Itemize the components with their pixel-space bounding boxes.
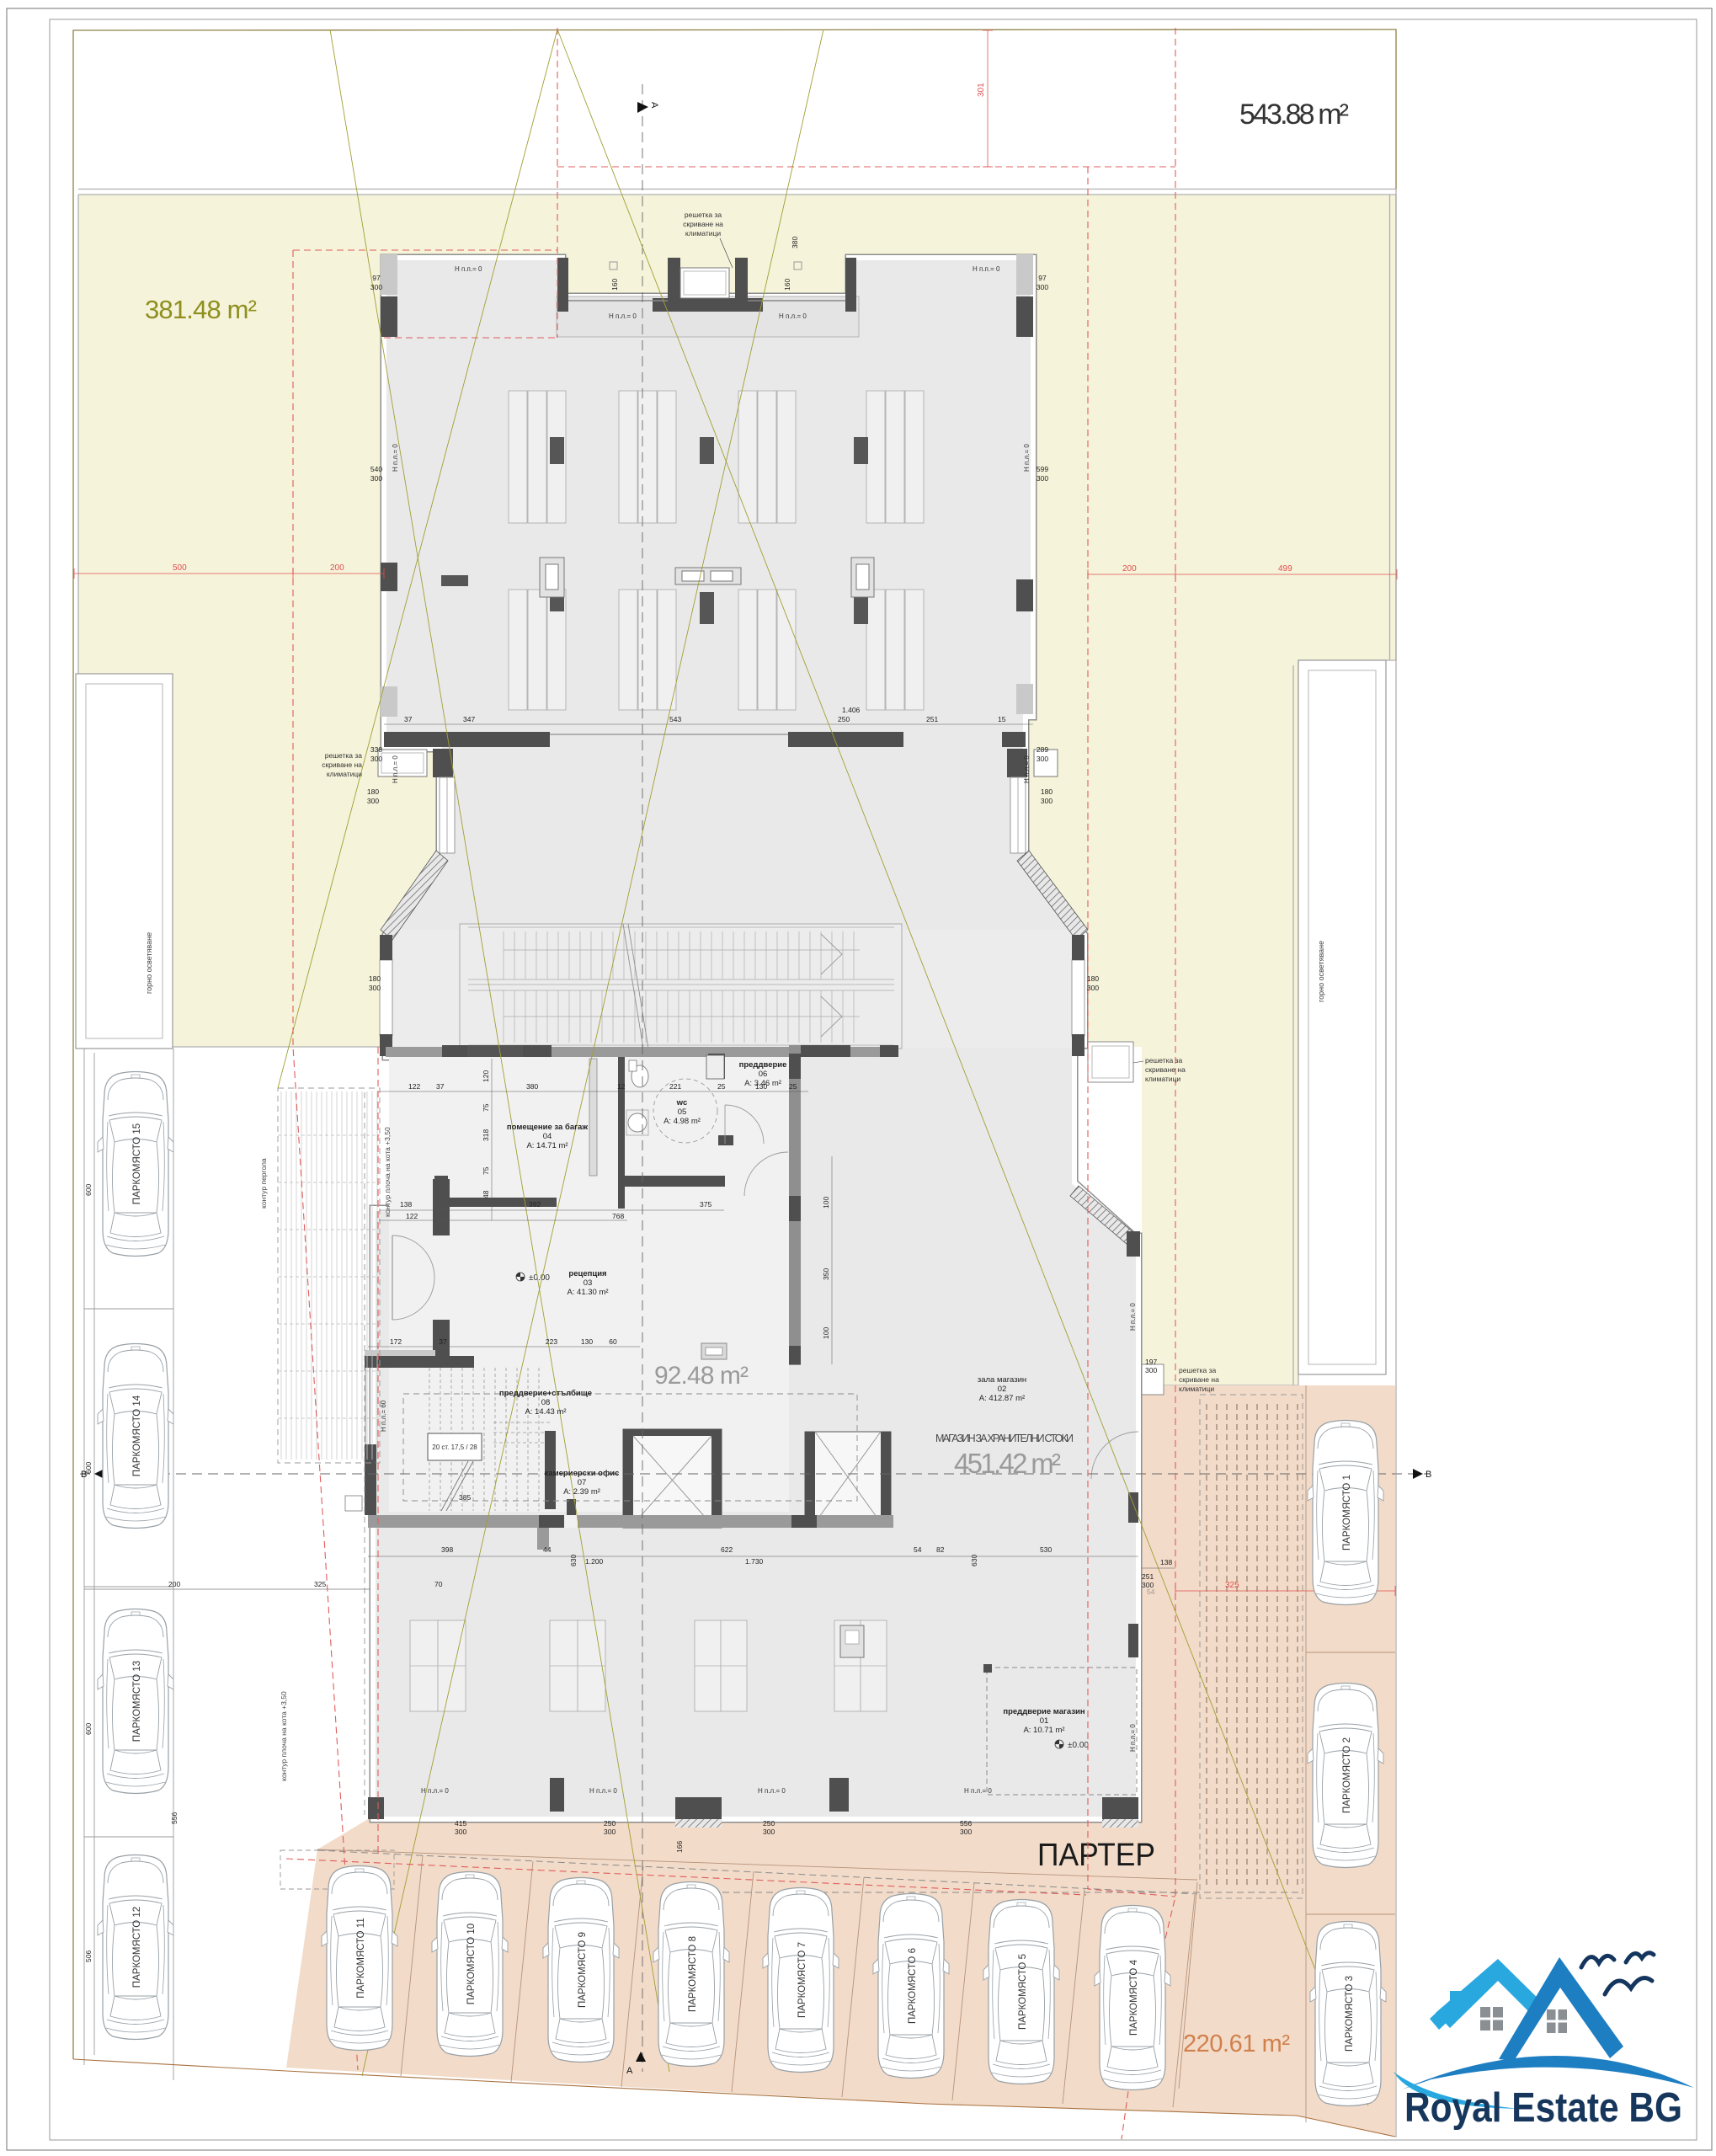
svg-text:Н п.л.= 0: Н п.л.= 0	[1023, 444, 1031, 472]
svg-text:04: 04	[543, 1132, 552, 1141]
svg-text:контур плоча на кота +3,50: контур плоча на кота +3,50	[383, 1127, 392, 1217]
svg-text:325: 325	[1225, 1581, 1239, 1590]
svg-text:600: 600	[84, 1184, 93, 1196]
svg-text:А: 412.87 m²: А: 412.87 m²	[979, 1394, 1025, 1403]
svg-text:Н п.л.= 0: Н п.л.= 0	[1129, 1303, 1137, 1331]
svg-text:06: 06	[759, 1070, 768, 1079]
svg-text:зала магазин: зала магазин	[978, 1375, 1026, 1385]
svg-text:ПАРКОМЯСТО 5: ПАРКОМЯСТО 5	[1018, 1954, 1028, 2030]
svg-text:499: 499	[1278, 564, 1292, 574]
svg-text:Н п.л.= 0: Н п.л.= 0	[1023, 755, 1031, 783]
svg-text:385: 385	[459, 1493, 471, 1502]
svg-text:200: 200	[168, 1580, 180, 1588]
svg-text:300: 300	[1037, 474, 1048, 483]
svg-text:Н п.л.= 0: Н п.л.= 0	[609, 312, 637, 320]
svg-text:Н п.л.= 0: Н п.л.= 0	[758, 1787, 786, 1795]
svg-text:ПАРКОМЯСТО 8: ПАРКОМЯСТО 8	[688, 1936, 698, 2012]
svg-text:B: B	[1426, 1470, 1431, 1480]
svg-text:Н п.л.= 60: Н п.л.= 60	[380, 1400, 387, 1432]
svg-text:180: 180	[1087, 974, 1099, 983]
svg-text:01: 01	[1040, 1716, 1049, 1726]
svg-text:100: 100	[822, 1327, 830, 1339]
svg-text:398: 398	[441, 1545, 453, 1554]
svg-text:скриване на: скриване на	[322, 760, 362, 769]
svg-text:±0.00: ±0.00	[1068, 1741, 1089, 1750]
svg-text:ПАРКОМЯСТО 4: ПАРКОМЯСТО 4	[1129, 1959, 1139, 2036]
svg-text:122: 122	[408, 1082, 420, 1091]
svg-text:Н п.л.= 0: Н п.л.= 0	[589, 1787, 617, 1795]
svg-text:160: 160	[610, 279, 619, 291]
svg-text:ПАРКОМЯСТО 6: ПАРКОМЯСТО 6	[908, 1948, 918, 2024]
svg-text:180: 180	[1041, 787, 1053, 796]
svg-text:ПАРКОМЯСТО 7: ПАРКОМЯСТО 7	[797, 1942, 807, 2018]
svg-text:А: 2.39 m²: А: 2.39 m²	[563, 1487, 600, 1497]
svg-text:ПАРТЕР: ПАРТЕР	[1037, 1838, 1155, 1873]
svg-text:Royal Estate BG: Royal Estate BG	[1404, 2085, 1682, 2131]
svg-text:300: 300	[370, 755, 382, 763]
svg-text:скриване на: скриване на	[1179, 1375, 1219, 1384]
svg-text:138: 138	[400, 1200, 412, 1209]
svg-text:1.406: 1.406	[842, 706, 861, 714]
svg-text:300: 300	[1037, 755, 1048, 763]
svg-text:350: 350	[822, 1268, 830, 1280]
svg-text:камериерски офис: камериерски офис	[545, 1469, 620, 1478]
svg-text:223: 223	[546, 1337, 557, 1346]
svg-text:300: 300	[763, 1828, 775, 1836]
svg-text:МАГАЗИН ЗА ХРАНИТЕЛНИ СТОКИ: МАГАЗИН ЗА ХРАНИТЕЛНИ СТОКИ	[935, 1433, 1074, 1444]
svg-text:ПАРКОМЯСТО 12: ПАРКОМЯСТО 12	[132, 1907, 142, 1988]
svg-text:75: 75	[482, 1166, 490, 1175]
svg-text:160: 160	[783, 279, 791, 291]
svg-text:600: 600	[84, 1723, 93, 1735]
svg-text:300: 300	[1041, 797, 1053, 805]
svg-text:180: 180	[369, 974, 381, 983]
svg-text:решетка за: решетка за	[685, 211, 722, 219]
svg-text:Н п.п.= 0: Н п.п.= 0	[973, 265, 1000, 273]
svg-text:помещение за багаж: помещение за багаж	[507, 1123, 588, 1132]
svg-text:ПАРКОМЯСТО 15: ПАРКОМЯСТО 15	[132, 1123, 142, 1204]
svg-text:300: 300	[1087, 984, 1099, 992]
svg-text:A: A	[626, 2066, 633, 2076]
svg-text:75: 75	[482, 1103, 490, 1112]
svg-text:климатици: климатици	[1145, 1075, 1180, 1083]
svg-text:А: 4.98 m²: А: 4.98 m²	[663, 1117, 701, 1126]
svg-text:А: 14.43 m²: А: 14.43 m²	[525, 1407, 566, 1417]
svg-text:А: 14.71 m²: А: 14.71 m²	[526, 1141, 568, 1150]
svg-text:горно осветяване: горно осветяване	[1317, 941, 1325, 1002]
svg-text:622: 622	[721, 1545, 733, 1554]
svg-text:92.48 m²: 92.48 m²	[654, 1362, 749, 1390]
svg-text:скриване на: скриване на	[1145, 1065, 1186, 1074]
svg-text:300: 300	[1142, 1581, 1154, 1589]
svg-text:768: 768	[612, 1212, 624, 1220]
svg-text:ПАРКОМЯСТО 9: ПАРКОМЯСТО 9	[578, 1932, 588, 2008]
svg-text:250: 250	[763, 1819, 775, 1828]
svg-text:200: 200	[1122, 564, 1137, 574]
svg-text:А: 10.71 m²: А: 10.71 m²	[1023, 1726, 1064, 1735]
svg-text:250: 250	[604, 1819, 616, 1828]
svg-text:климатици: климатици	[685, 229, 721, 237]
svg-text:08: 08	[541, 1398, 551, 1407]
svg-text:A: A	[649, 102, 659, 109]
svg-text:530: 530	[1040, 1545, 1052, 1554]
svg-text:54: 54	[914, 1545, 922, 1554]
svg-text:ПАРКОМЯСТО 2: ПАРКОМЯСТО 2	[1342, 1737, 1352, 1813]
svg-text:180: 180	[367, 787, 379, 796]
svg-text:500: 500	[173, 563, 187, 573]
svg-text:Н п.л.= 0: Н п.л.= 0	[964, 1787, 992, 1795]
svg-text:климатици: климатици	[327, 770, 362, 778]
svg-text:166: 166	[675, 1841, 684, 1853]
svg-text:506: 506	[84, 1951, 93, 1962]
svg-text:25: 25	[717, 1082, 726, 1091]
svg-text:горно осветяване: горно осветяване	[145, 932, 153, 994]
svg-text:37: 37	[436, 1082, 445, 1091]
svg-text:07: 07	[578, 1478, 587, 1487]
svg-text:1.200: 1.200	[585, 1557, 604, 1566]
svg-text:197: 197	[1145, 1358, 1157, 1366]
svg-text:преддверие+стълбище: преддверие+стълбище	[499, 1389, 592, 1398]
svg-text:381.48 m²: 381.48 m²	[145, 295, 257, 324]
svg-text:300: 300	[367, 797, 379, 805]
svg-text:300: 300	[370, 474, 382, 483]
svg-text:300: 300	[1037, 283, 1048, 291]
svg-text:251: 251	[1142, 1572, 1154, 1581]
svg-text:318: 318	[482, 1129, 490, 1141]
svg-text:97: 97	[372, 274, 381, 282]
svg-text:44: 44	[543, 1545, 552, 1554]
svg-text:05: 05	[678, 1107, 687, 1117]
svg-text:543.88 m²: 543.88 m²	[1239, 99, 1349, 131]
svg-text:преддверие: преддверие	[739, 1060, 787, 1070]
svg-text:82: 82	[936, 1545, 945, 1554]
svg-text:599: 599	[1037, 465, 1048, 473]
svg-text:100: 100	[822, 1197, 830, 1209]
svg-text:600: 600	[84, 1462, 93, 1474]
svg-text:300: 300	[370, 283, 382, 291]
svg-text:300: 300	[1145, 1366, 1157, 1374]
svg-text:380: 380	[791, 237, 799, 248]
svg-text:556: 556	[170, 1812, 179, 1824]
svg-text:200: 200	[330, 563, 344, 573]
svg-text:415: 415	[455, 1819, 466, 1828]
svg-text:375: 375	[700, 1200, 711, 1209]
svg-text:преддверие магазин: преддверие магазин	[1003, 1707, 1085, 1716]
svg-text:решетка за: решетка за	[1145, 1056, 1183, 1065]
svg-text:ПАРКОМЯСТО 13: ПАРКОМЯСТО 13	[132, 1661, 142, 1742]
svg-text:37: 37	[439, 1337, 447, 1346]
svg-text:Н п.л.= 0: Н п.л.= 0	[392, 444, 399, 472]
svg-text:300: 300	[960, 1828, 972, 1836]
svg-text:130: 130	[755, 1082, 767, 1091]
svg-text:решетка за: решетка за	[325, 751, 363, 760]
svg-text:контур плоча на кота +3,50: контур плоча на кота +3,50	[280, 1691, 288, 1781]
svg-text:25: 25	[789, 1082, 797, 1091]
svg-text:12: 12	[617, 1082, 626, 1091]
svg-text:рецепция: рецепция	[568, 1269, 606, 1278]
svg-text:48: 48	[482, 1190, 490, 1198]
svg-text:380: 380	[526, 1082, 538, 1091]
svg-text:решетка за: решетка за	[1179, 1366, 1217, 1374]
svg-text:02: 02	[998, 1385, 1007, 1394]
svg-text:Н п.л.= 0: Н п.л.= 0	[421, 1787, 449, 1795]
svg-text:300: 300	[369, 984, 381, 992]
svg-text:60: 60	[609, 1337, 617, 1346]
svg-text:301: 301	[977, 83, 986, 97]
svg-text:347: 347	[463, 715, 475, 723]
svg-text:120: 120	[482, 1070, 490, 1082]
svg-text:Н п.л.= 0: Н п.л.= 0	[779, 312, 807, 320]
svg-text:контур пергола: контур пергола	[259, 1158, 268, 1209]
svg-text:300: 300	[455, 1828, 466, 1836]
svg-text:630: 630	[569, 1555, 578, 1566]
svg-text:70: 70	[434, 1580, 443, 1588]
svg-text:1.730: 1.730	[745, 1557, 764, 1566]
svg-text:wc: wc	[676, 1098, 688, 1107]
svg-text:ПАРКОМЯСТО 3: ПАРКОМЯСТО 3	[1345, 1976, 1355, 2052]
svg-text:325: 325	[314, 1580, 326, 1588]
svg-text:±0.00: ±0.00	[529, 1273, 550, 1283]
svg-text:ПАРКОМЯСТО 10: ПАРКОМЯСТО 10	[466, 1924, 477, 2004]
svg-text:ПАРКОМЯСТО 1: ПАРКОМЯСТО 1	[1342, 1475, 1352, 1550]
svg-text:ПАРКОМЯСТО 11: ПАРКОМЯСТО 11	[356, 1918, 366, 1999]
svg-text:251: 251	[926, 715, 938, 723]
svg-text:300: 300	[604, 1828, 616, 1836]
svg-text:97: 97	[1038, 274, 1047, 282]
svg-text:289: 289	[1037, 745, 1048, 754]
svg-text:03: 03	[584, 1278, 593, 1288]
svg-text:скриване на: скриване на	[683, 220, 723, 228]
svg-text:20 ст. 17,5 / 28: 20 ст. 17,5 / 28	[432, 1444, 477, 1451]
svg-text:Н п.л.= 0: Н п.л.= 0	[392, 755, 399, 783]
svg-text:15: 15	[998, 715, 1006, 723]
svg-text:392: 392	[529, 1200, 541, 1209]
svg-text:122: 122	[406, 1212, 418, 1220]
svg-text:540: 540	[370, 465, 382, 473]
svg-text:338: 338	[370, 745, 382, 754]
svg-text:172: 172	[390, 1337, 402, 1346]
svg-text:630: 630	[970, 1555, 978, 1566]
svg-text:220.61 m²: 220.61 m²	[1183, 2031, 1290, 2057]
svg-text:221: 221	[669, 1082, 681, 1091]
svg-text:37: 37	[404, 715, 413, 723]
svg-text:ПАРКОМЯСТО 14: ПАРКОМЯСТО 14	[132, 1395, 142, 1476]
svg-text:климатици: климатици	[1179, 1385, 1214, 1393]
svg-text:250: 250	[838, 715, 850, 723]
svg-text:138: 138	[1160, 1558, 1172, 1566]
svg-text:А: 41.30 m²: А: 41.30 m²	[567, 1288, 608, 1297]
svg-text:Н п.п.= 0: Н п.п.= 0	[455, 265, 482, 273]
svg-text:556: 556	[960, 1819, 972, 1828]
svg-text:130: 130	[581, 1337, 593, 1346]
svg-text:Н п.л.= 0: Н п.л.= 0	[1129, 1724, 1137, 1752]
svg-text:543: 543	[669, 715, 681, 723]
